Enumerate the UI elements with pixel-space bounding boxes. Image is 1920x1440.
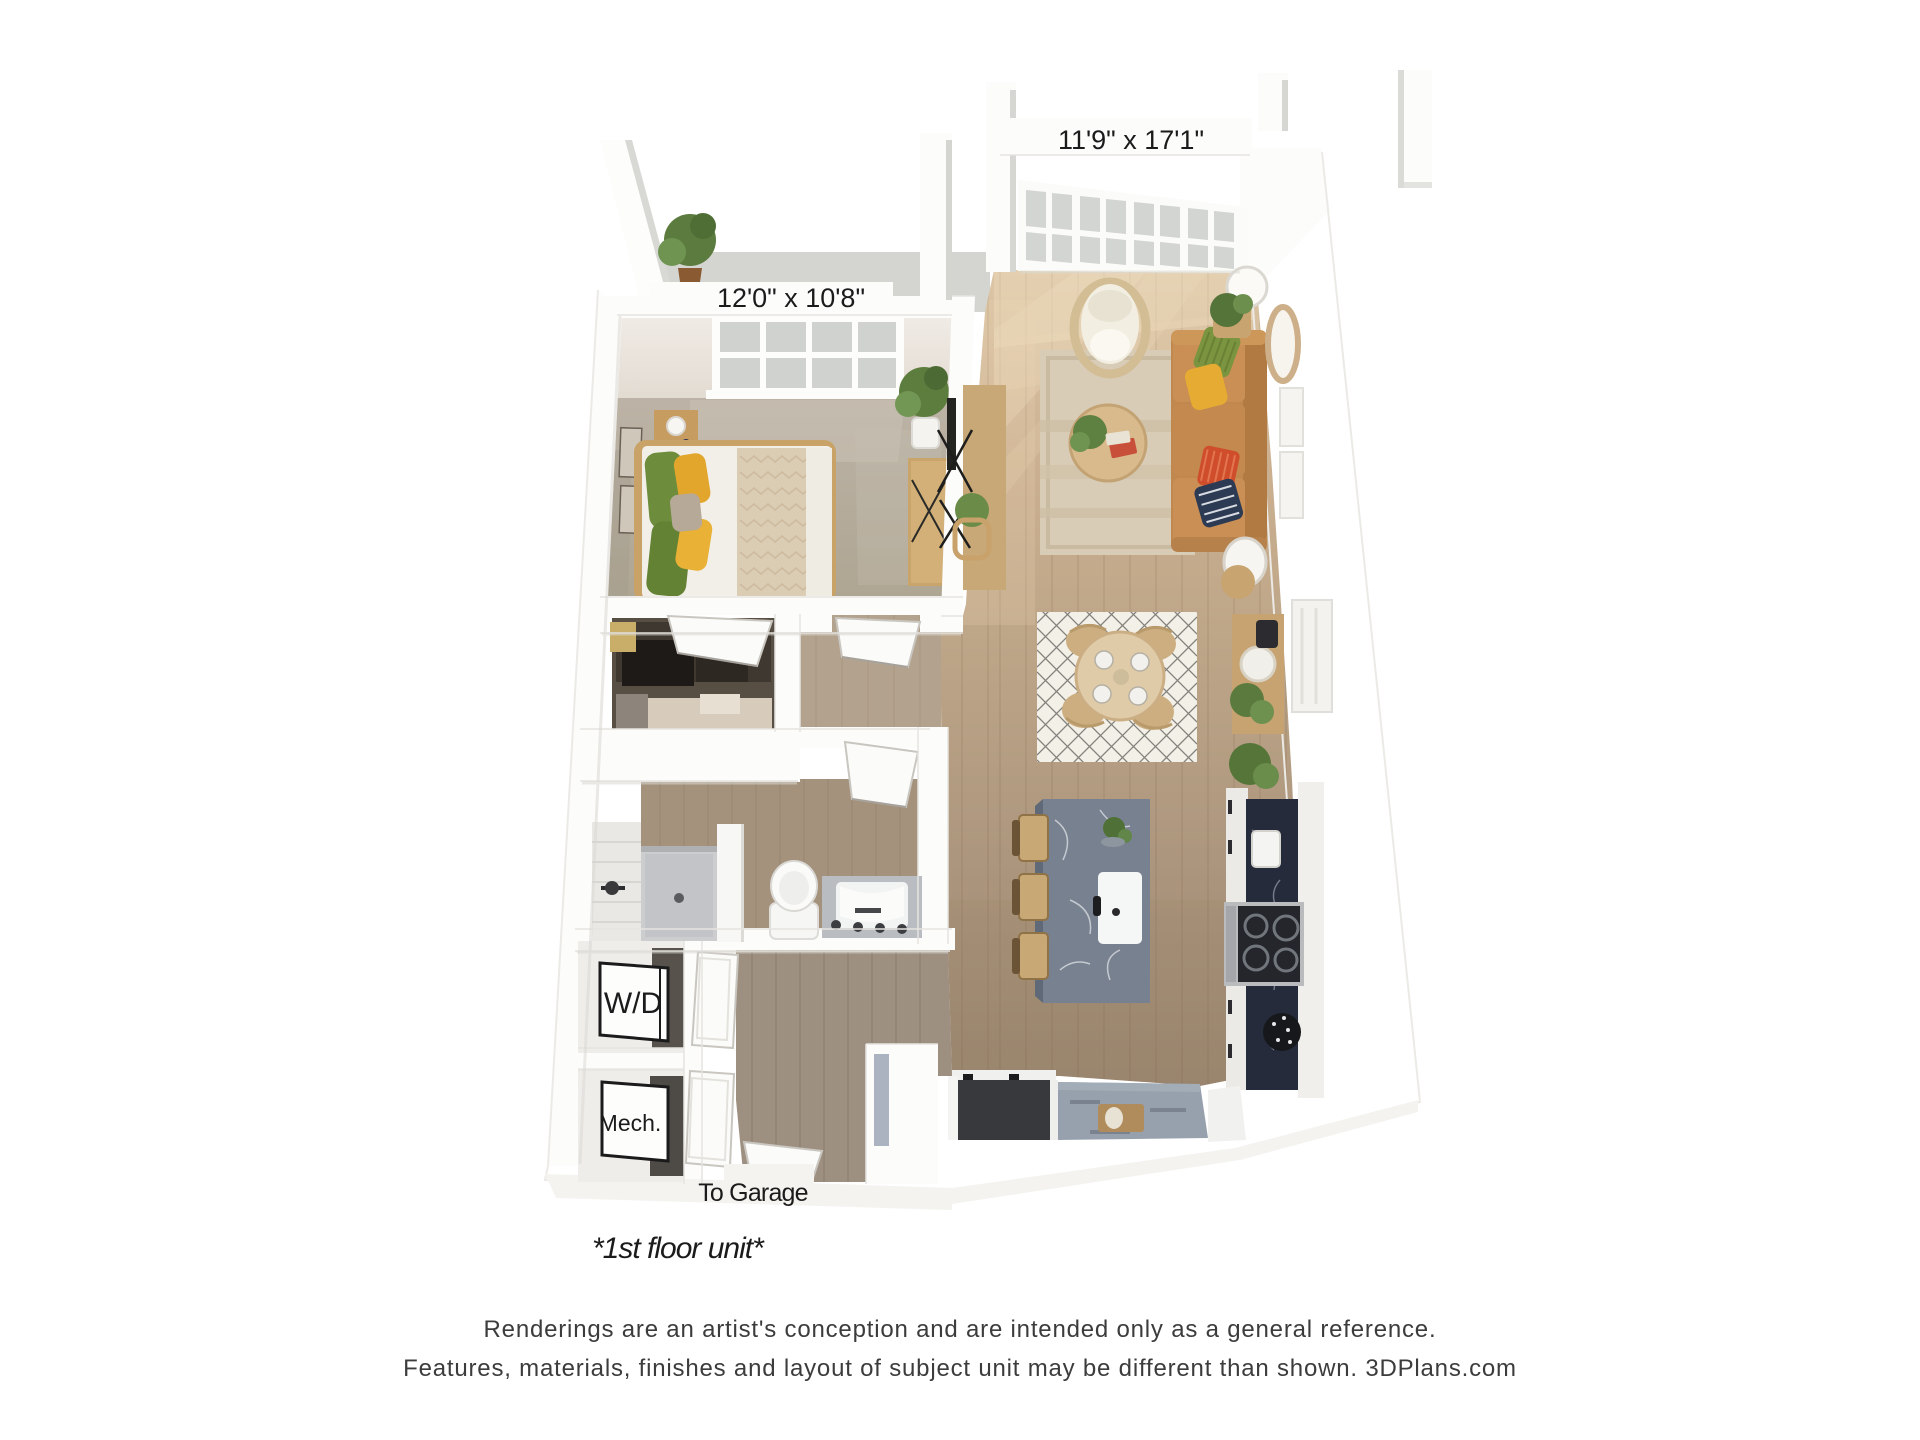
svg-text:Features, materials, finishes: Features, materials, finishes and layout…: [403, 1355, 1517, 1382]
svg-text:W/D: W/D: [604, 987, 662, 1020]
svg-text:Renderings are an artist's con: Renderings are an artist's conception an…: [484, 1316, 1437, 1343]
svg-text:11'9" x 17'1": 11'9" x 17'1": [1058, 125, 1204, 155]
svg-text:12'0" x 10'8": 12'0" x 10'8": [717, 283, 865, 313]
svg-text:Mech.: Mech.: [599, 1110, 662, 1136]
svg-text:To Garage: To Garage: [698, 1179, 808, 1207]
svg-text:*1st floor unit*: *1st floor unit*: [592, 1232, 765, 1265]
